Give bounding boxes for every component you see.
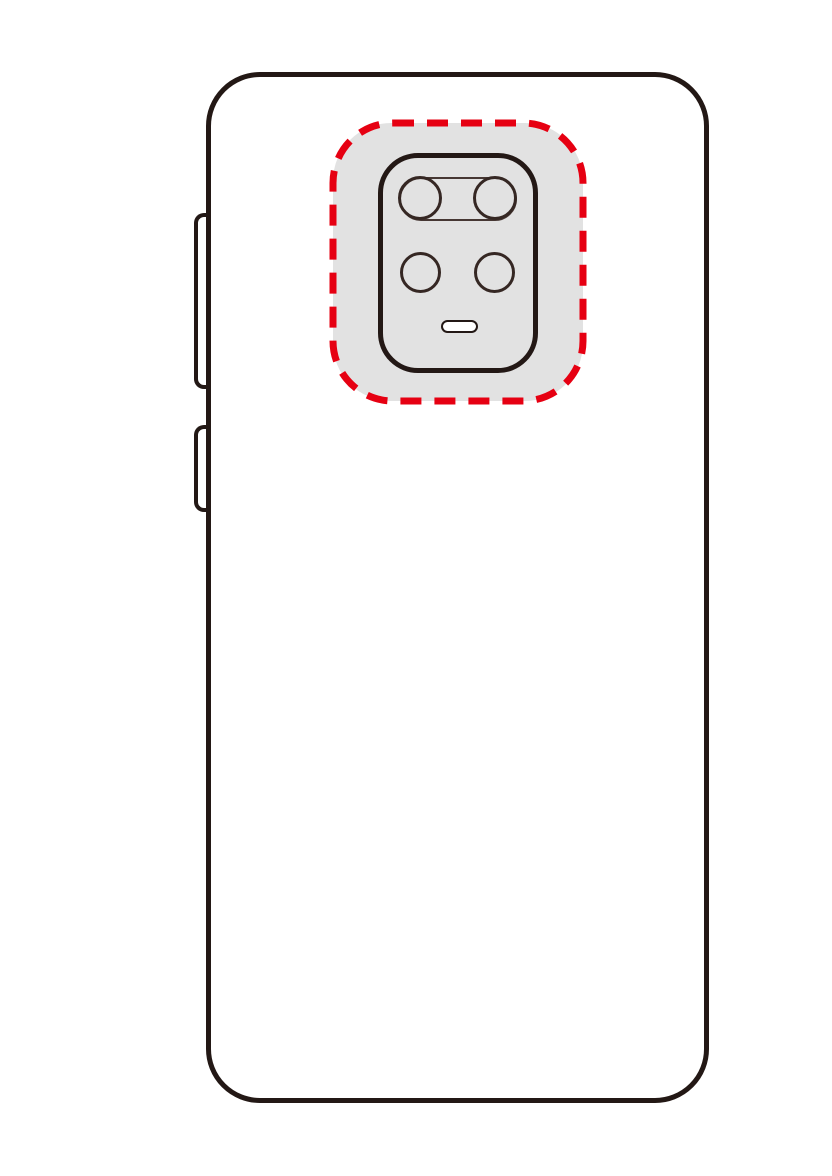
camera-module (378, 153, 538, 373)
camera-lens-top-right (473, 176, 517, 220)
camera-lens-top-left (398, 176, 442, 220)
illustration-canvas (0, 0, 832, 1176)
camera-lens-bottom-left (400, 252, 441, 293)
camera-lens-bottom-right (474, 252, 515, 293)
flash-led (441, 320, 478, 333)
